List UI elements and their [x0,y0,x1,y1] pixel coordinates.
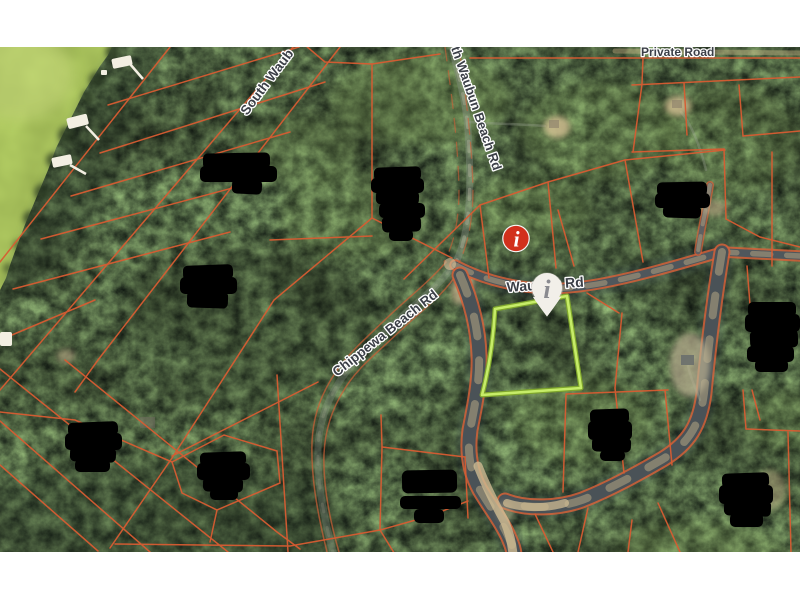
svg-text:i: i [543,275,551,304]
svg-text:Private Road: Private Road [641,45,714,59]
svg-text:i: i [513,227,520,252]
